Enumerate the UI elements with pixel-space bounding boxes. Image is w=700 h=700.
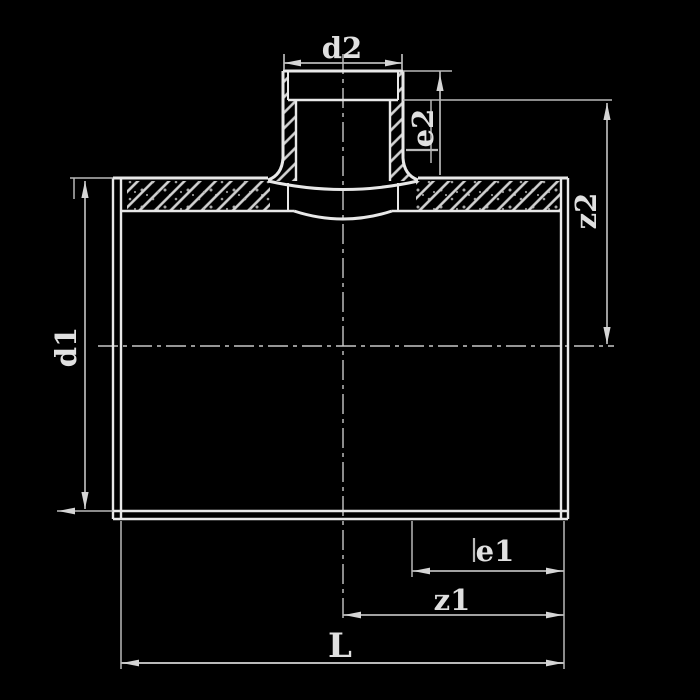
- dim-label-z2: z2: [569, 193, 603, 230]
- dim-label-d1: d1: [49, 327, 83, 367]
- dim-label-z1: z1: [434, 583, 471, 617]
- dim-label-e2: e2: [406, 109, 440, 148]
- dim-label-e1: e1: [476, 534, 515, 568]
- tee-fitting-section-drawing: d2 e2 z2 d1: [0, 0, 700, 700]
- main-wall-speckle-left: [127, 181, 270, 211]
- dim-label-d2: d2: [322, 31, 362, 65]
- drawing-background: [0, 0, 700, 700]
- technical-drawing-canvas: d2 e2 z2 d1: [0, 0, 700, 700]
- dim-label-L: L: [328, 626, 352, 666]
- main-wall-speckle-right: [416, 181, 561, 211]
